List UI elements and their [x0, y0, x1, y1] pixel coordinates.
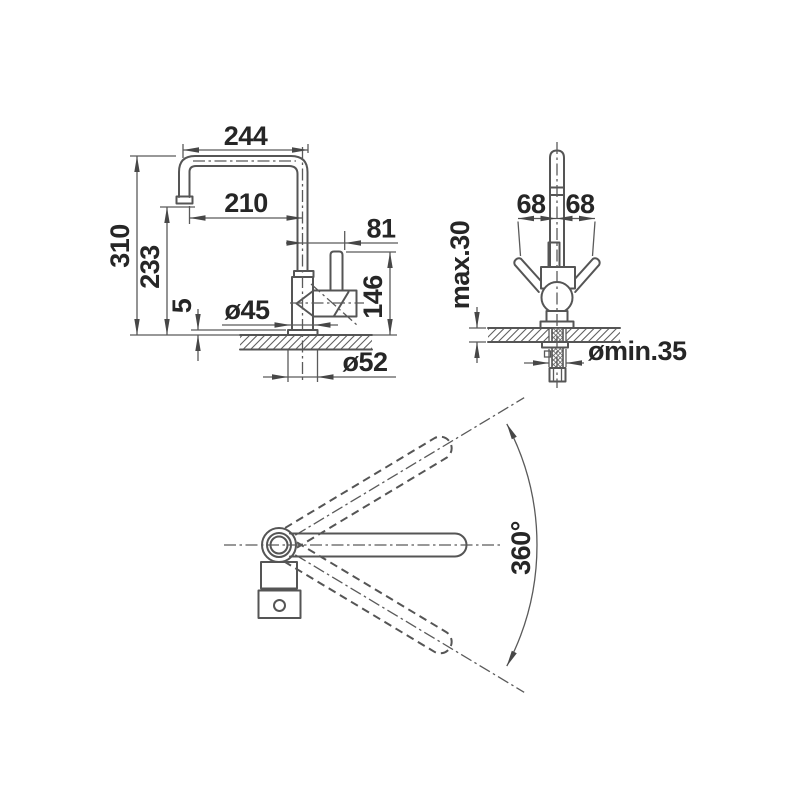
dim-label-max30: max.30 — [445, 221, 475, 310]
top-spout-swung-up — [285, 388, 530, 548]
dim-label-dia52: ø52 — [342, 347, 387, 377]
dim-label-210: 210 — [224, 188, 268, 218]
dim-label-5: 5 — [167, 298, 197, 313]
top-spout-swung-down — [285, 542, 530, 702]
drawing-svg: 244 210 310 233 5 — [0, 0, 800, 800]
side-handle-lever — [331, 252, 343, 291]
faucet-technical-drawing: 244 210 310 233 5 — [0, 0, 800, 800]
dimension-146: 146 — [346, 252, 397, 335]
dim-label-68-right: 68 — [565, 189, 595, 219]
dim-label-dia45: ø45 — [224, 295, 270, 325]
top-handle — [259, 562, 301, 618]
dim-label-244: 244 — [224, 121, 268, 151]
dim-label-360: 360° — [506, 521, 536, 575]
front-body — [541, 267, 576, 328]
dim-label-233: 233 — [135, 245, 165, 289]
dimension-210: 210 — [190, 188, 303, 224]
top-view: 360° — [224, 388, 537, 702]
dimension-68-68: 68 68 — [516, 189, 595, 256]
front-view: 68 68 max.30 ømin.35 — [445, 142, 687, 388]
dimension-360: 360° — [506, 424, 537, 666]
dimension-dia45: ø45 — [222, 295, 338, 328]
side-view: 244 210 310 233 5 — [105, 121, 398, 382]
dim-label-146: 146 — [358, 275, 388, 319]
dim-label-310: 310 — [105, 224, 135, 268]
dimension-233: 233 — [135, 207, 195, 335]
dim-label-min35: ømin.35 — [588, 336, 687, 366]
dim-label-81: 81 — [366, 214, 396, 244]
dimension-dia52: ø52 — [263, 347, 396, 380]
dim-label-68-left: 68 — [516, 189, 546, 219]
dimension-244: 244 — [183, 121, 308, 158]
dimension-max30: max.30 — [445, 221, 486, 363]
